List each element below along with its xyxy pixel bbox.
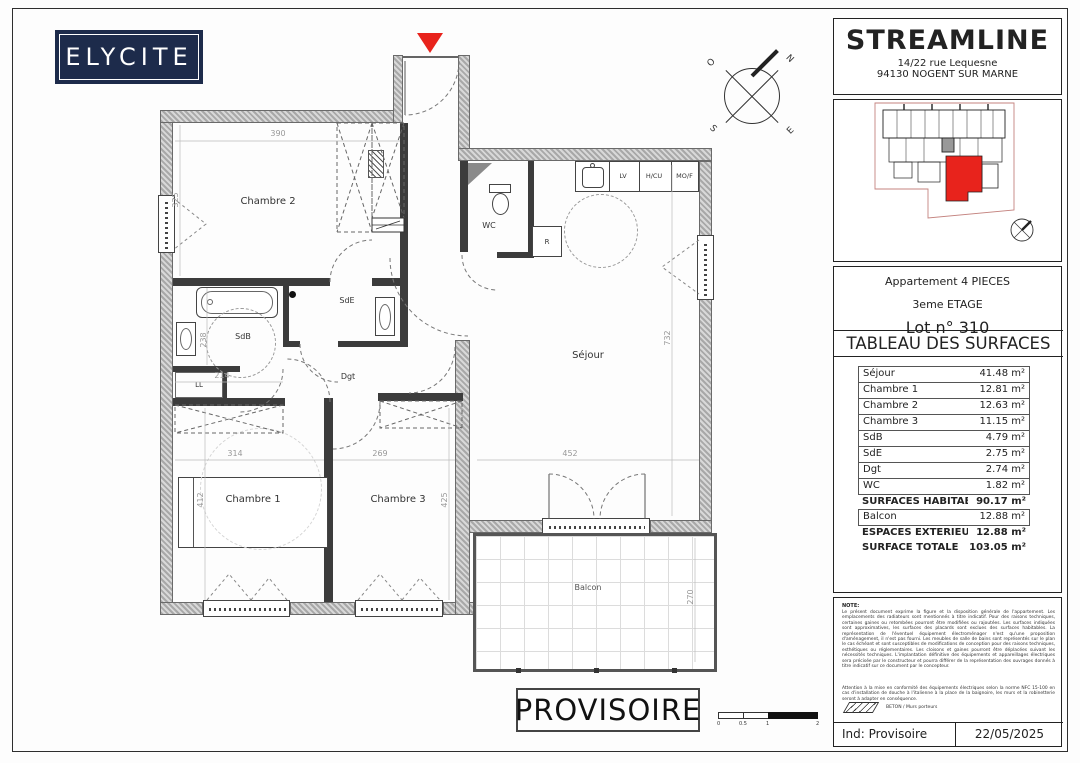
table-row: Dgt2.74 m² bbox=[858, 462, 1030, 479]
note-title: NOTE: bbox=[842, 603, 859, 609]
room-label-chambre3: Chambre 3 bbox=[370, 494, 425, 505]
dimension-label: 238 bbox=[199, 323, 209, 357]
floorplan-sheet: { "sheet": { "logo": "ELYCITE", "stamp":… bbox=[0, 0, 1080, 763]
dimension-label: 325 bbox=[171, 183, 181, 217]
scale-bar: 0 0.5 1 2 bbox=[718, 712, 820, 728]
table-row: Séjour41.48 m² bbox=[858, 366, 1030, 383]
table-row: SdE2.75 m² bbox=[858, 446, 1030, 463]
revision-bar: Ind: Provisoire 22/05/2025 bbox=[834, 722, 1063, 746]
surface-table: Séjour41.48 m² Chambre 112.81 m² Chambre… bbox=[858, 367, 1030, 556]
provisional-stamp: PROVISOIRE bbox=[516, 688, 700, 732]
room-label-sde: SdE bbox=[339, 296, 354, 305]
note-paragraph: Le présent document exprime la figure et… bbox=[842, 610, 1055, 669]
revision-index: Ind: Provisoire bbox=[834, 723, 956, 746]
masonry-legend-icon bbox=[843, 702, 879, 713]
table-row-total: SURFACE TOTALE103.05 m² bbox=[858, 541, 1030, 556]
dimension-label: 425 bbox=[440, 483, 450, 517]
note-box: NOTE: Le présent document exprime la fig… bbox=[833, 597, 1062, 747]
brand-name: STREAMLINE bbox=[834, 25, 1061, 56]
table-row: Balcon12.88 m² bbox=[858, 509, 1030, 526]
key-plan-box bbox=[833, 99, 1062, 262]
key-plan-compass-icon bbox=[1011, 219, 1033, 241]
dimension-label: 314 bbox=[218, 449, 252, 459]
dimension-label: 452 bbox=[553, 449, 587, 459]
dimension-label: 390 bbox=[261, 129, 295, 139]
table-row: SdB4.79 m² bbox=[858, 430, 1030, 447]
floor-label: 3eme ETAGE bbox=[834, 298, 1061, 311]
apartment-type: Appartement 4 PIECES bbox=[834, 275, 1061, 288]
note-paragraph: Attention à la mise en conformité des éq… bbox=[842, 686, 1055, 702]
dimension-label: 214 bbox=[205, 371, 239, 381]
revision-date: 22/05/2025 bbox=[956, 723, 1063, 746]
room-label-chambre1: Chambre 1 bbox=[225, 494, 280, 505]
brand-address-2: 94130 NOGENT SUR MARNE bbox=[834, 69, 1061, 80]
dimension-label: 270 bbox=[686, 580, 696, 614]
masonry-legend-label: BETON / Murs porteurs bbox=[886, 705, 937, 710]
table-row: Chambre 212.63 m² bbox=[858, 398, 1030, 415]
plan-linework bbox=[0, 0, 830, 763]
table-row: WC1.82 m² bbox=[858, 478, 1030, 495]
key-plan bbox=[834, 100, 1063, 263]
dimension-label: 412 bbox=[196, 483, 206, 517]
brand-address-1: 14/22 rue Lequesne bbox=[834, 58, 1061, 69]
room-label-sdb: SdB bbox=[235, 332, 251, 341]
room-label-chambre2: Chambre 2 bbox=[240, 196, 295, 207]
room-label-wc: WC bbox=[482, 221, 496, 230]
table-row: Chambre 311.15 m² bbox=[858, 414, 1030, 431]
table-title: TABLEAU DES SURFACES bbox=[834, 334, 1063, 353]
dimension-label: 269 bbox=[363, 449, 397, 459]
room-label-sejour: Séjour bbox=[572, 350, 604, 361]
table-row: Chambre 112.81 m² bbox=[858, 382, 1030, 399]
table-row-total: SURFACES HABITABLES90.17 m² bbox=[858, 495, 1030, 510]
brand-box: STREAMLINE 14/22 rue Lequesne 94130 NOGE… bbox=[833, 18, 1062, 95]
table-row-total: ESPACES EXTERIEURS12.88 m² bbox=[858, 526, 1030, 541]
room-label-balcon: Balcon bbox=[575, 583, 602, 592]
surfaces-box: Appartement 4 PIECES 3eme ETAGE Lot n° 3… bbox=[833, 266, 1062, 593]
room-label-dgt: Dgt bbox=[341, 372, 355, 381]
dimension-label: 732 bbox=[663, 321, 673, 355]
